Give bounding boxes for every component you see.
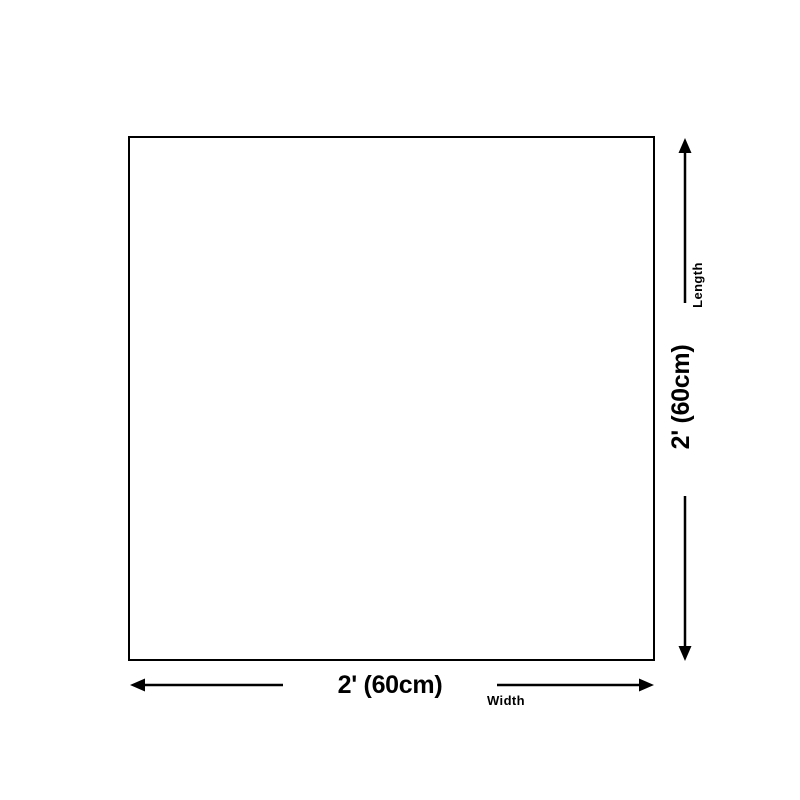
width-value: 2' (60cm) [330,671,450,699]
width-arrow-left-icon [126,673,286,697]
width-axis-label: Width [476,693,536,709]
product-outline [128,136,655,661]
length-arrow-down-icon [673,491,697,663]
length-value: 2' (60cm) [667,337,695,457]
length-axis-label: Length [690,255,706,315]
size-diagram: Length 2' (60cm) 2' (60cm) Width [0,0,800,800]
